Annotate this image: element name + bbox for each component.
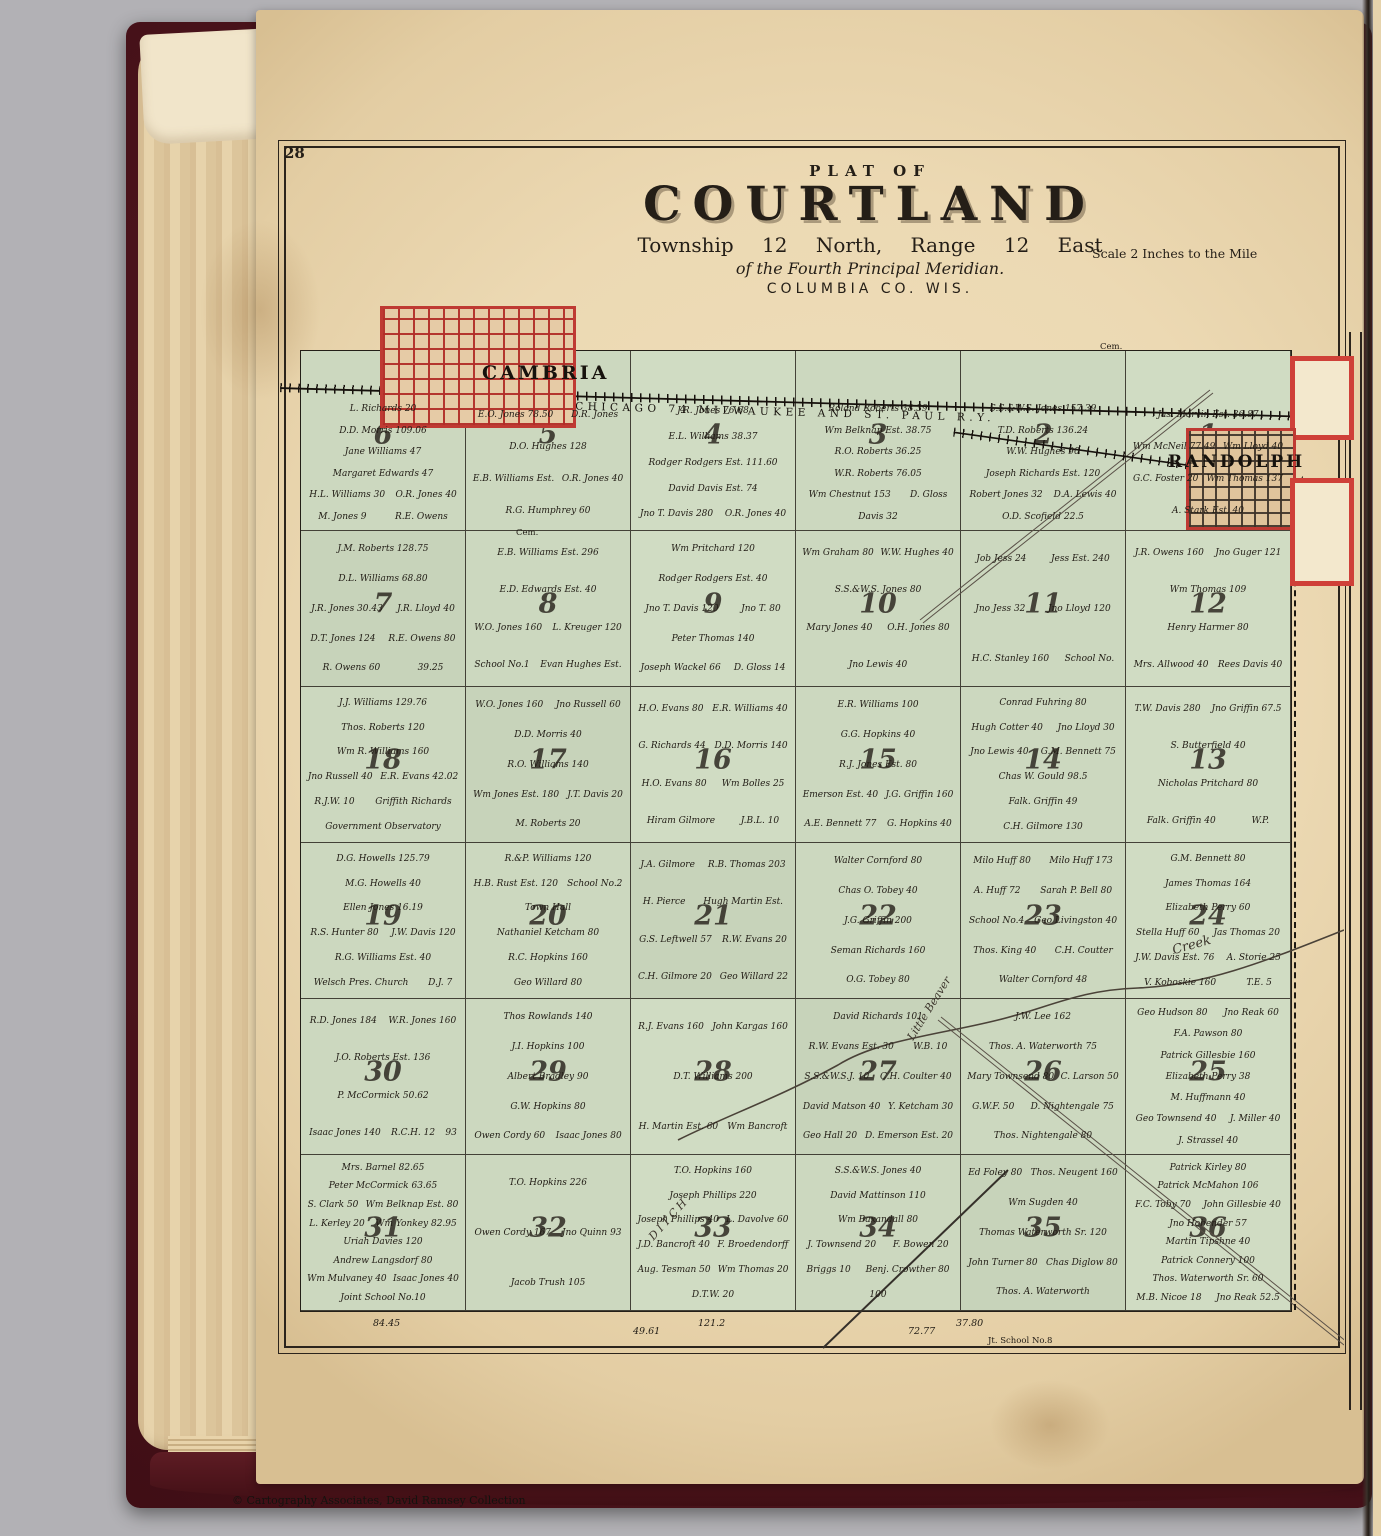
owner-label: 39.25: [418, 663, 444, 674]
owner-label: A. Stark Est. 40: [1172, 506, 1244, 517]
owner-label: Patrick Gillesbie 160: [1161, 1051, 1256, 1062]
owner-label: R.J. Evans 160: [638, 1022, 704, 1033]
owner-label: E.R. Williams 100: [837, 700, 918, 711]
owner-label: Walter Cornford 48: [999, 975, 1087, 986]
owner-label: G.M. Bennett 80: [1170, 854, 1245, 865]
owner-label: D.O. Hughes 128: [509, 442, 587, 453]
owner-label: School No.1: [474, 660, 529, 671]
owner-label: D.T. Williams 200: [673, 1072, 752, 1083]
owner-label: J.R. Jones 30.43: [311, 604, 383, 615]
owner-label: Geo Willard 22: [720, 972, 788, 983]
owner-label: D. Nightengale 75: [1031, 1102, 1114, 1113]
owner-label: S.S.&W.S. Jones 40: [835, 1166, 922, 1177]
owner-label: E.O. Jones 78.50: [478, 410, 553, 421]
owner-label: Evan Hughes Est.: [540, 660, 621, 671]
owner-label: Jno Lewis 40: [849, 660, 908, 671]
owner-label: O.H. Jones 80: [887, 623, 949, 634]
owner-label: Welsch Pres. Church: [314, 978, 409, 989]
owner-label: Thos. A. Waterworth 75: [989, 1042, 1097, 1053]
owner-label: D. Gloss: [910, 490, 947, 501]
owner-label: Patrick Kirley 80: [1170, 1163, 1247, 1174]
owner-label: R.W. Evans Est. 30: [809, 1042, 894, 1053]
owner-label: Job Jess 24: [976, 554, 1026, 565]
owner-label: Jno Griffin 67.5: [1212, 704, 1282, 715]
owner-label: Albert Bradley 90: [508, 1072, 589, 1083]
owner-label: Jno Lloyd 120: [1048, 604, 1111, 615]
owner-label: J.G. Griffin 160: [885, 790, 953, 801]
owner-label: D.R. Jones: [571, 410, 618, 421]
owner-label: R.&P. Williams 120: [505, 854, 592, 865]
owner-label: Wm Baxandall 80: [838, 1215, 918, 1226]
owner-label: 93: [445, 1128, 456, 1139]
owner-label: J.I. Hopkins 100: [512, 1042, 585, 1053]
owner-label: R.C.H. 12: [391, 1128, 435, 1139]
cemetery-label: Cem.: [516, 528, 538, 538]
owner-label: James Thomas 164: [1165, 879, 1251, 890]
owner-label: T.D. Roberts 136.24: [998, 426, 1088, 437]
owner-label: Isaac Jones 140: [309, 1128, 381, 1139]
owner-label: Jno Hobender 57: [1169, 1219, 1247, 1230]
owner-label: Wm Thomas 137: [1207, 474, 1283, 485]
owner-label: Wm McNeil 77.49: [1133, 442, 1216, 453]
owner-label: Stella Huff 60: [1136, 928, 1199, 939]
owner-label: H.B. Rust Est. 120: [474, 879, 558, 890]
owner-label: T.O. Hopkins 226: [509, 1178, 587, 1189]
owner-label: Sarah P. Bell 80: [1040, 886, 1112, 897]
owner-label: D. Gloss 14: [734, 663, 786, 674]
owner-label: Wm R. Williams 160: [337, 747, 429, 758]
owner-label: R.E. Owens 80: [388, 634, 455, 645]
owner-label: D.T. Jones 124: [310, 634, 375, 645]
owner-label: Hiram Gilmore: [647, 816, 715, 827]
owner-label: Jno T. Davis 120: [645, 604, 718, 615]
owner-label: Chas Diglow 80: [1046, 1258, 1118, 1269]
owner-label: F. Broedendorff: [717, 1240, 788, 1251]
owner-label: Rodger Rodgers Est. 111.60: [648, 458, 777, 469]
owner-label: V. Koboskie 160: [1144, 978, 1216, 989]
owner-label: Government Observatory: [325, 822, 441, 833]
owner-label: David Mattinson 110: [830, 1191, 926, 1202]
owner-label: Wm Sugden 40: [1008, 1198, 1078, 1209]
owner-label: W.O. Jones 160: [475, 700, 543, 711]
owner-label: D. Emerson Est. 20: [865, 1131, 953, 1142]
owner-label: Conrad Fuhring 80: [999, 698, 1086, 709]
owner-label: Falk. Griffin 40: [1147, 816, 1216, 827]
owner-label: S.S.&W.S.J. 10: [804, 1072, 869, 1083]
owner-label: M. Huffmann 40: [1171, 1093, 1246, 1104]
owner-label: E.D. Edwards Est. 40: [500, 585, 597, 596]
owner-label: T.E. 5: [1246, 978, 1272, 989]
owner-label: Patrick McMahon 106: [1157, 1181, 1258, 1192]
owner-label: O.G. Tobey 80: [846, 975, 910, 986]
owner-label: R.J. Jones Est. 80: [839, 760, 917, 771]
owner-label: J. Miller 40: [1230, 1114, 1280, 1125]
owner-label: Thos. King 40: [973, 946, 1036, 957]
page-gutter-shadow: [1362, 0, 1373, 1536]
owner-label: E.B. Williams Est.: [473, 474, 554, 485]
owner-label: Patrick Connery 100: [1161, 1256, 1255, 1267]
owner-label: Hugh Martin Est.: [703, 897, 783, 908]
owner-label: C.H. Coulter 40: [880, 1072, 952, 1083]
owner-label: S. Clark 50: [308, 1200, 359, 1211]
owner-label: Isaac Jones 80: [556, 1131, 622, 1142]
owner-label: G.C. Foster 20: [1133, 474, 1198, 485]
owner-label: Falk. Griffin 49: [1009, 797, 1078, 808]
cambria-label: CAMBRIA: [482, 362, 609, 384]
owner-label: Joint School No.10: [340, 1293, 425, 1304]
owner-label: Jno Russell 40: [308, 772, 373, 783]
owner-label: J.T. Davis 20: [567, 790, 623, 801]
owner-label: L. Kerley 20: [309, 1219, 364, 1230]
owner-label: Jas Thomas 20: [1213, 928, 1280, 939]
owner-label: School No.: [1065, 654, 1115, 665]
owner-label: F.C. Toby 70: [1135, 1200, 1191, 1211]
owner-label: Wm Pritchard 120: [671, 544, 755, 555]
owner-label: H. Pierce: [643, 897, 686, 908]
owner-label: Owen Cordy 60: [474, 1131, 545, 1142]
owner-label: R.G. Williams Est. 40: [335, 953, 431, 964]
owner-label: D.L. Williams 68.80: [338, 574, 427, 585]
owner-label: Thos. Roberts 120: [341, 723, 424, 734]
owner-label: R.S. Hunter 80: [310, 928, 378, 939]
owner-label: Hugh Cotter 40: [971, 723, 1043, 734]
owner-label: Wm Graham 80: [802, 548, 874, 559]
owner-label: W.R. Roberts 76.05: [834, 469, 921, 480]
owner-label: D.D. Morris 140: [714, 741, 787, 752]
county-boundary-line: [1294, 530, 1296, 1310]
owner-label: C. Larson 50: [1061, 1072, 1119, 1083]
owner-label: Seman Richards 160: [831, 946, 926, 957]
owner-label: L. Kreuger 120: [553, 623, 622, 634]
owner-label: Ed Foley 80: [968, 1168, 1022, 1179]
paper-stain: [990, 1380, 1110, 1470]
owner-label: Thos. Nightengale 80: [994, 1131, 1092, 1142]
owner-label: Peter Thomas 140: [672, 634, 755, 645]
owner-label: G.W.F. 50: [972, 1102, 1014, 1113]
owner-label: G.W. Hopkins 80: [510, 1102, 585, 1113]
owner-label: Geo Willard 80: [514, 978, 582, 989]
owner-label: Mrs. Barnel 82.65: [342, 1163, 425, 1174]
owner-label: Geo Hudson 80: [1137, 1008, 1207, 1019]
owner-label: D.J. 7: [428, 978, 452, 989]
owner-label: S. Butterfield 40: [1170, 741, 1245, 752]
owner-label: R.O. Roberts 36.25: [835, 447, 922, 458]
randolph-addition-bottom: [1290, 478, 1354, 586]
owner-label: John Gillesbie 40: [1203, 1200, 1281, 1211]
owner-label: D.D. Morris 40: [514, 730, 581, 741]
owner-label: Ellen Jones 16.19: [343, 903, 423, 914]
owner-label: J.J. Williams 129.76: [339, 698, 427, 709]
owner-label: Wm Chestnut 153: [809, 490, 891, 501]
owner-label: G. Richards 44: [638, 741, 705, 752]
owner-label: J.A. Gilmore: [640, 860, 695, 871]
owner-label: Mrs. Allwood 40: [1134, 660, 1209, 671]
owner-label: Joseph Richards Est. 120: [986, 469, 1101, 480]
owner-label: Milo Huff 80: [973, 856, 1031, 867]
owner-label: T.W. Davis 280: [1134, 704, 1200, 715]
owner-label: Jno Lloyd 30: [1058, 723, 1115, 734]
owner-label: Chas O. Tobey 40: [838, 886, 917, 897]
owner-label: Griffith Richards: [375, 797, 451, 808]
owner-label: David Richards 101: [833, 1012, 923, 1023]
owner-label: Thos. Waterworth Sr. 60: [1153, 1274, 1264, 1285]
owner-label: Thomas Waterworth Sr. 120: [979, 1228, 1107, 1239]
owner-label: O.R. Jones 40: [562, 474, 623, 485]
owner-label: J.M. Roberts 128.75: [338, 544, 429, 555]
owner-label: Joseph Phillips 40: [638, 1215, 719, 1226]
owner-label: Wm Lloyd 40: [1223, 442, 1283, 453]
owner-label: Joseph Wackel 66: [641, 663, 721, 674]
owner-label: Roland Roberts 38.39: [828, 404, 927, 415]
owner-label: John Kargas 160: [712, 1022, 788, 1033]
owner-label: L. Richards 20: [350, 404, 417, 415]
owner-label: F.A. Pawson 80: [1174, 1029, 1243, 1040]
owner-label: O.R. Jones 40: [395, 490, 456, 501]
owner-label: D.A. Lewis 40: [1054, 490, 1117, 501]
owner-label: Rees Davis 40: [1218, 660, 1282, 671]
owner-label: Elizabeth Perry 38: [1166, 1072, 1251, 1083]
owner-label: Andrew Langsdorf 80: [334, 1256, 433, 1267]
owner-label: W.W. Hughes 40: [880, 548, 953, 559]
owner-label: Geo Townsend 40: [1136, 1114, 1217, 1125]
owner-label: S.S.&W.S. Jones 157.39: [990, 404, 1097, 415]
owner-label: R.W. Evans 20: [722, 935, 787, 946]
owner-label: W.B. 10: [913, 1042, 947, 1053]
owner-label: W.R. Jones 160: [388, 1016, 456, 1027]
owner-label: Emerson Est. 40: [803, 790, 878, 801]
owner-label: G. Hopkins 40: [887, 819, 952, 830]
facing-page-edge: [1373, 0, 1381, 1536]
owner-label: L. Davolve 60: [726, 1215, 788, 1226]
owner-label: G.S. Leftwell 57: [639, 935, 712, 946]
owner-label: Elizabeth Perry 60: [1166, 903, 1251, 914]
owner-label: Jno Quinn 93: [562, 1228, 622, 1239]
owner-label: R. Owens 60: [323, 663, 381, 674]
owner-label: Thos. Neugent 160: [1031, 1168, 1118, 1179]
owner-label: J.R. Lloyd 40: [397, 604, 455, 615]
owner-label: Milo Huff 173: [1049, 856, 1112, 867]
owner-label: J.O. Roberts Est. 136: [336, 1053, 431, 1064]
owner-label: R.G. Humphrey 60: [506, 506, 591, 517]
owner-label: W.W. Hughes 90: [1006, 447, 1079, 458]
school-label: Jt. School No.8: [988, 1336, 1052, 1346]
owner-label: Martin Tipshne 40: [1166, 1237, 1251, 1248]
owner-label: Henry Harmer 80: [1167, 623, 1248, 634]
owner-label: M.B. Nicoe 18: [1136, 1293, 1201, 1304]
owner-label: School No.4: [969, 916, 1024, 927]
owner-label: Wm Mulvaney 40: [307, 1274, 387, 1285]
owner-label: School No.2: [567, 879, 622, 890]
owner-label: T.O. Hopkins 160: [674, 1166, 752, 1177]
owner-label: Davis 32: [858, 512, 897, 523]
owner-label: A. Storie 25: [1227, 953, 1281, 964]
owner-label: J.B.L. 10: [741, 816, 779, 827]
owner-label: Jno Russell 60: [556, 700, 621, 711]
owner-label: Wm Yonkey 82.95: [375, 1219, 457, 1230]
owner-label: Geo Hall 20: [803, 1131, 857, 1142]
owner-label: Briggs 10: [806, 1265, 850, 1276]
owner-label: R.O. Williams 140: [507, 760, 588, 771]
owner-label: Joseph Phillips 220: [669, 1191, 756, 1202]
owner-label: Thos Rowlands 140: [503, 1012, 592, 1023]
owner-label: J.R. Jones 76.68: [677, 406, 749, 417]
owner-label: Nathaniel Ketcham 80: [497, 928, 599, 939]
owner-label: 100: [869, 1290, 886, 1301]
owner-label: David Matson 40: [803, 1102, 881, 1113]
owner-label: Benj. Crowther 80: [866, 1265, 950, 1276]
owner-label: Wm Belknap Est. 80: [366, 1200, 459, 1211]
owner-label: J.W. Davis Est. 76: [1135, 953, 1214, 964]
owner-label: Nicholas Pritchard 80: [1158, 779, 1258, 790]
owner-label: O.D. Scofield 22.5: [1002, 512, 1084, 523]
owner-label: Thos. A. Waterworth: [996, 1287, 1090, 1298]
owner-label: Walter Cornford 80: [834, 856, 922, 867]
owner-label: D.T.W. 20: [692, 1290, 734, 1301]
owner-label: H.O. Evans 80: [642, 779, 707, 790]
owner-label: Jess Est. 240: [1051, 554, 1110, 565]
owner-label: C.H. Gilmore 130: [1003, 822, 1083, 833]
owner-label: J. Townsend 20: [807, 1240, 876, 1251]
owner-label: J.W. Davis 120: [391, 928, 455, 939]
owner-label: H.O. Evans 80: [638, 704, 703, 715]
owner-label: Jacob Trush 105: [511, 1278, 586, 1289]
owner-label: S.S.&W.S. Jones 80: [835, 585, 922, 596]
owner-label: D.G. Howells 125.79: [336, 854, 429, 865]
owner-label: John Turner 80: [968, 1258, 1037, 1269]
owner-label: C.H. Gilmore 20: [638, 972, 712, 983]
owner-label: Mary Jones 40: [806, 623, 872, 634]
owner-label: Wm Thomas 109: [1170, 585, 1246, 596]
owner-label: Rodger Rodgers Est. 40: [658, 574, 767, 585]
owner-label: David Davis Est. 74: [668, 484, 757, 495]
owner-label: Wm Belknap Est. 38.75: [825, 426, 932, 437]
owner-label: W.O. Jones 160: [474, 623, 542, 634]
owner-label: Chas W. Gould 98.5: [999, 772, 1088, 783]
owner-label: R.D. Jones 184: [310, 1016, 377, 1027]
owner-label: Jno Jess 32: [975, 604, 1025, 615]
owner-label: G.M. Bennett 75: [1041, 747, 1116, 758]
owner-label: Aug. Tesman 50: [638, 1265, 711, 1276]
randolph-label: RANDOLPH: [1168, 452, 1305, 472]
owner-label: R.E. Owens: [395, 512, 448, 523]
owner-label: P. McCormick 50.62: [337, 1091, 428, 1102]
owner-label: Wm Thomas 20: [718, 1265, 789, 1276]
owner-label: C.H. Coutter: [1055, 946, 1113, 957]
owner-label: H.L. Williams 30: [309, 490, 385, 501]
owner-label: Geo Livingston 40: [1034, 916, 1117, 927]
owner-label: R.B. Thomas 203: [708, 860, 786, 871]
owner-label: E.B. Williams Est. 296: [497, 548, 598, 559]
owner-label: H. Martin Est. 60: [639, 1122, 719, 1133]
owner-label: J.G. Griffin 200: [844, 916, 912, 927]
owner-label: Jno Reak 60: [1224, 1008, 1279, 1019]
owner-label: A.E. Bennett 77: [804, 819, 876, 830]
owner-label: Jno Lewis 40: [970, 747, 1029, 758]
randolph-addition-top: [1290, 356, 1354, 440]
owner-label: Wm Bancroft: [727, 1122, 787, 1133]
owner-label: A. Huff 72: [974, 886, 1021, 897]
owner-label: R.C. Hopkins 160: [508, 953, 588, 964]
owner-label: M. Roberts 20: [515, 819, 580, 830]
owner-label: J. Strassel 40: [1178, 1136, 1238, 1147]
owner-label: J.W. Lee 162: [1015, 1012, 1071, 1023]
owner-label: Robert Jones 32: [970, 490, 1043, 501]
owner-label: Peter McCormick 63.65: [329, 1181, 437, 1192]
owner-label: Mary Townsend 80: [967, 1072, 1054, 1083]
owner-label: M. Jones 9: [318, 512, 366, 523]
owner-label: E.R. Evans 42.02: [380, 772, 458, 783]
owner-label: O.R. Jones 40: [725, 509, 786, 520]
owner-label: R.J.W. 10: [314, 797, 354, 808]
cemetery-label: Cem.: [1100, 342, 1122, 352]
owner-label: J.R. Owens 160: [1135, 548, 1204, 559]
footer-credit: © Cartography Associates, David Ramsey C…: [232, 1494, 526, 1507]
owner-label: Wm Bolles 25: [722, 779, 785, 790]
owner-label: M.G. Howells 40: [345, 879, 421, 890]
owner-label: Margaret Edwards 47: [333, 469, 434, 480]
owner-label: D.D. Morris 109.06: [339, 426, 426, 437]
owner-label: Isaac Jones 40: [393, 1274, 459, 1285]
owner-label: Jane Williams 47: [345, 447, 421, 458]
owner-label: Owen Cordy 167: [474, 1228, 551, 1239]
owner-label: Wm Jones Est. 180: [473, 790, 559, 801]
owner-label: Jas. Marvin Est. 36.87: [1157, 410, 1258, 421]
owner-label: H.C. Stanley 160: [972, 654, 1049, 665]
owner-label: Uriah Davies 120: [343, 1237, 422, 1248]
owner-label: Town Hall: [525, 903, 571, 914]
owner-label: F. Bowen 20: [893, 1240, 949, 1251]
owner-label: E.R. Williams 40: [712, 704, 787, 715]
owner-label: Jno Guger 121: [1215, 548, 1281, 559]
owner-label: Jno T. Davis 280: [640, 509, 713, 520]
owner-label: G.G. Hopkins 40: [841, 730, 915, 741]
owner-label: W.P.: [1251, 816, 1269, 827]
owner-label: Y. Ketcham 30: [888, 1102, 953, 1113]
owner-label: Jno T. 80: [741, 604, 781, 615]
owner-label: E.L. Williams 38.37: [669, 432, 758, 443]
owner-label: Jno Reak 52.5: [1216, 1293, 1280, 1304]
owner-label: J.D. Bancroft 40: [638, 1240, 710, 1251]
